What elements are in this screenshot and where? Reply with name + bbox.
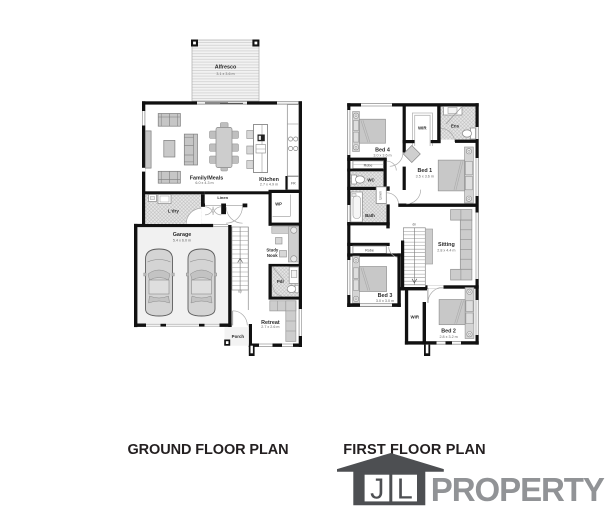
svg-text:Robe: Robe — [365, 249, 374, 253]
svg-text:Bed 2: Bed 2 — [441, 329, 456, 335]
svg-text:Porch: Porch — [232, 334, 245, 339]
svg-text:5.4 x 6.0 m: 5.4 x 6.0 m — [173, 239, 191, 243]
svg-text:Bed 4: Bed 4 — [375, 147, 390, 153]
svg-text:WC: WC — [367, 178, 375, 183]
svg-text:2.8 x 3.2 m: 2.8 x 3.2 m — [439, 335, 457, 339]
svg-text:WP: WP — [275, 201, 282, 206]
svg-text:GROUND FLOOR PLAN: GROUND FLOOR PLAN — [127, 442, 288, 458]
svg-text:3.0 x 3.0 m: 3.0 x 3.0 m — [376, 299, 394, 303]
svg-text:Sitting: Sitting — [438, 242, 455, 248]
svg-text:Bed 1: Bed 1 — [417, 168, 432, 174]
svg-text:Linen: Linen — [217, 195, 228, 200]
svg-text:3.0 x 3.6 m: 3.0 x 3.6 m — [373, 154, 391, 158]
svg-text:3.5 x 3.6 m: 3.5 x 3.6 m — [416, 175, 434, 179]
svg-text:WIR: WIR — [418, 126, 427, 131]
svg-text:Alfresco: Alfresco — [215, 65, 237, 71]
svg-text:2.8 x 4.4 m: 2.8 x 4.4 m — [437, 248, 455, 252]
svg-text:Linen: Linen — [379, 191, 383, 199]
svg-text:FR: FR — [291, 181, 296, 185]
svg-text:FIRST FLOOR PLAN: FIRST FLOOR PLAN — [343, 442, 486, 458]
svg-text:Nook: Nook — [267, 253, 278, 258]
svg-text:2.7 x 4.9 m: 2.7 x 4.9 m — [260, 182, 278, 186]
svg-text:6.0 x 4.3 m: 6.0 x 4.3 m — [195, 181, 213, 185]
svg-text:PROPERTY: PROPERTY — [431, 471, 605, 508]
svg-text:Bath: Bath — [365, 213, 375, 218]
svg-text:Pdr: Pdr — [277, 279, 285, 284]
svg-text:up: up — [238, 290, 242, 294]
svg-text:Garage: Garage — [173, 232, 192, 238]
svg-text:dn: dn — [413, 223, 417, 227]
svg-text:Study: Study — [266, 247, 279, 252]
svg-text:3.1 x 3.6 m: 3.1 x 3.6 m — [216, 72, 234, 76]
svg-text:L'dry: L'dry — [168, 209, 179, 214]
svg-text:WIR: WIR — [411, 315, 420, 320]
svg-text:Ens: Ens — [451, 124, 460, 129]
svg-text:L: L — [397, 473, 413, 505]
svg-text:J: J — [370, 473, 384, 505]
svg-text:Robe: Robe — [364, 163, 373, 167]
svg-text:2.7 x 2.6 m: 2.7 x 2.6 m — [261, 325, 279, 329]
